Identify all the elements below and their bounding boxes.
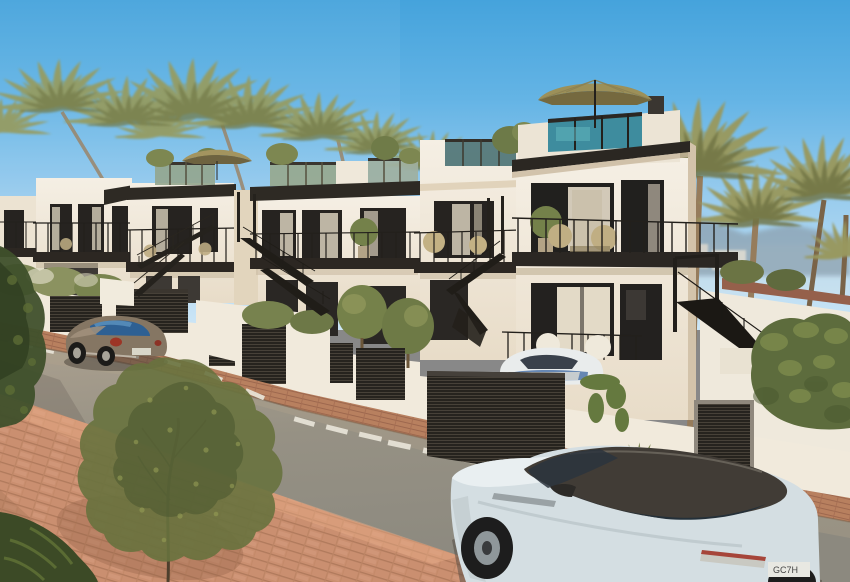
svg-text:GC7H: GC7H: [773, 565, 798, 575]
